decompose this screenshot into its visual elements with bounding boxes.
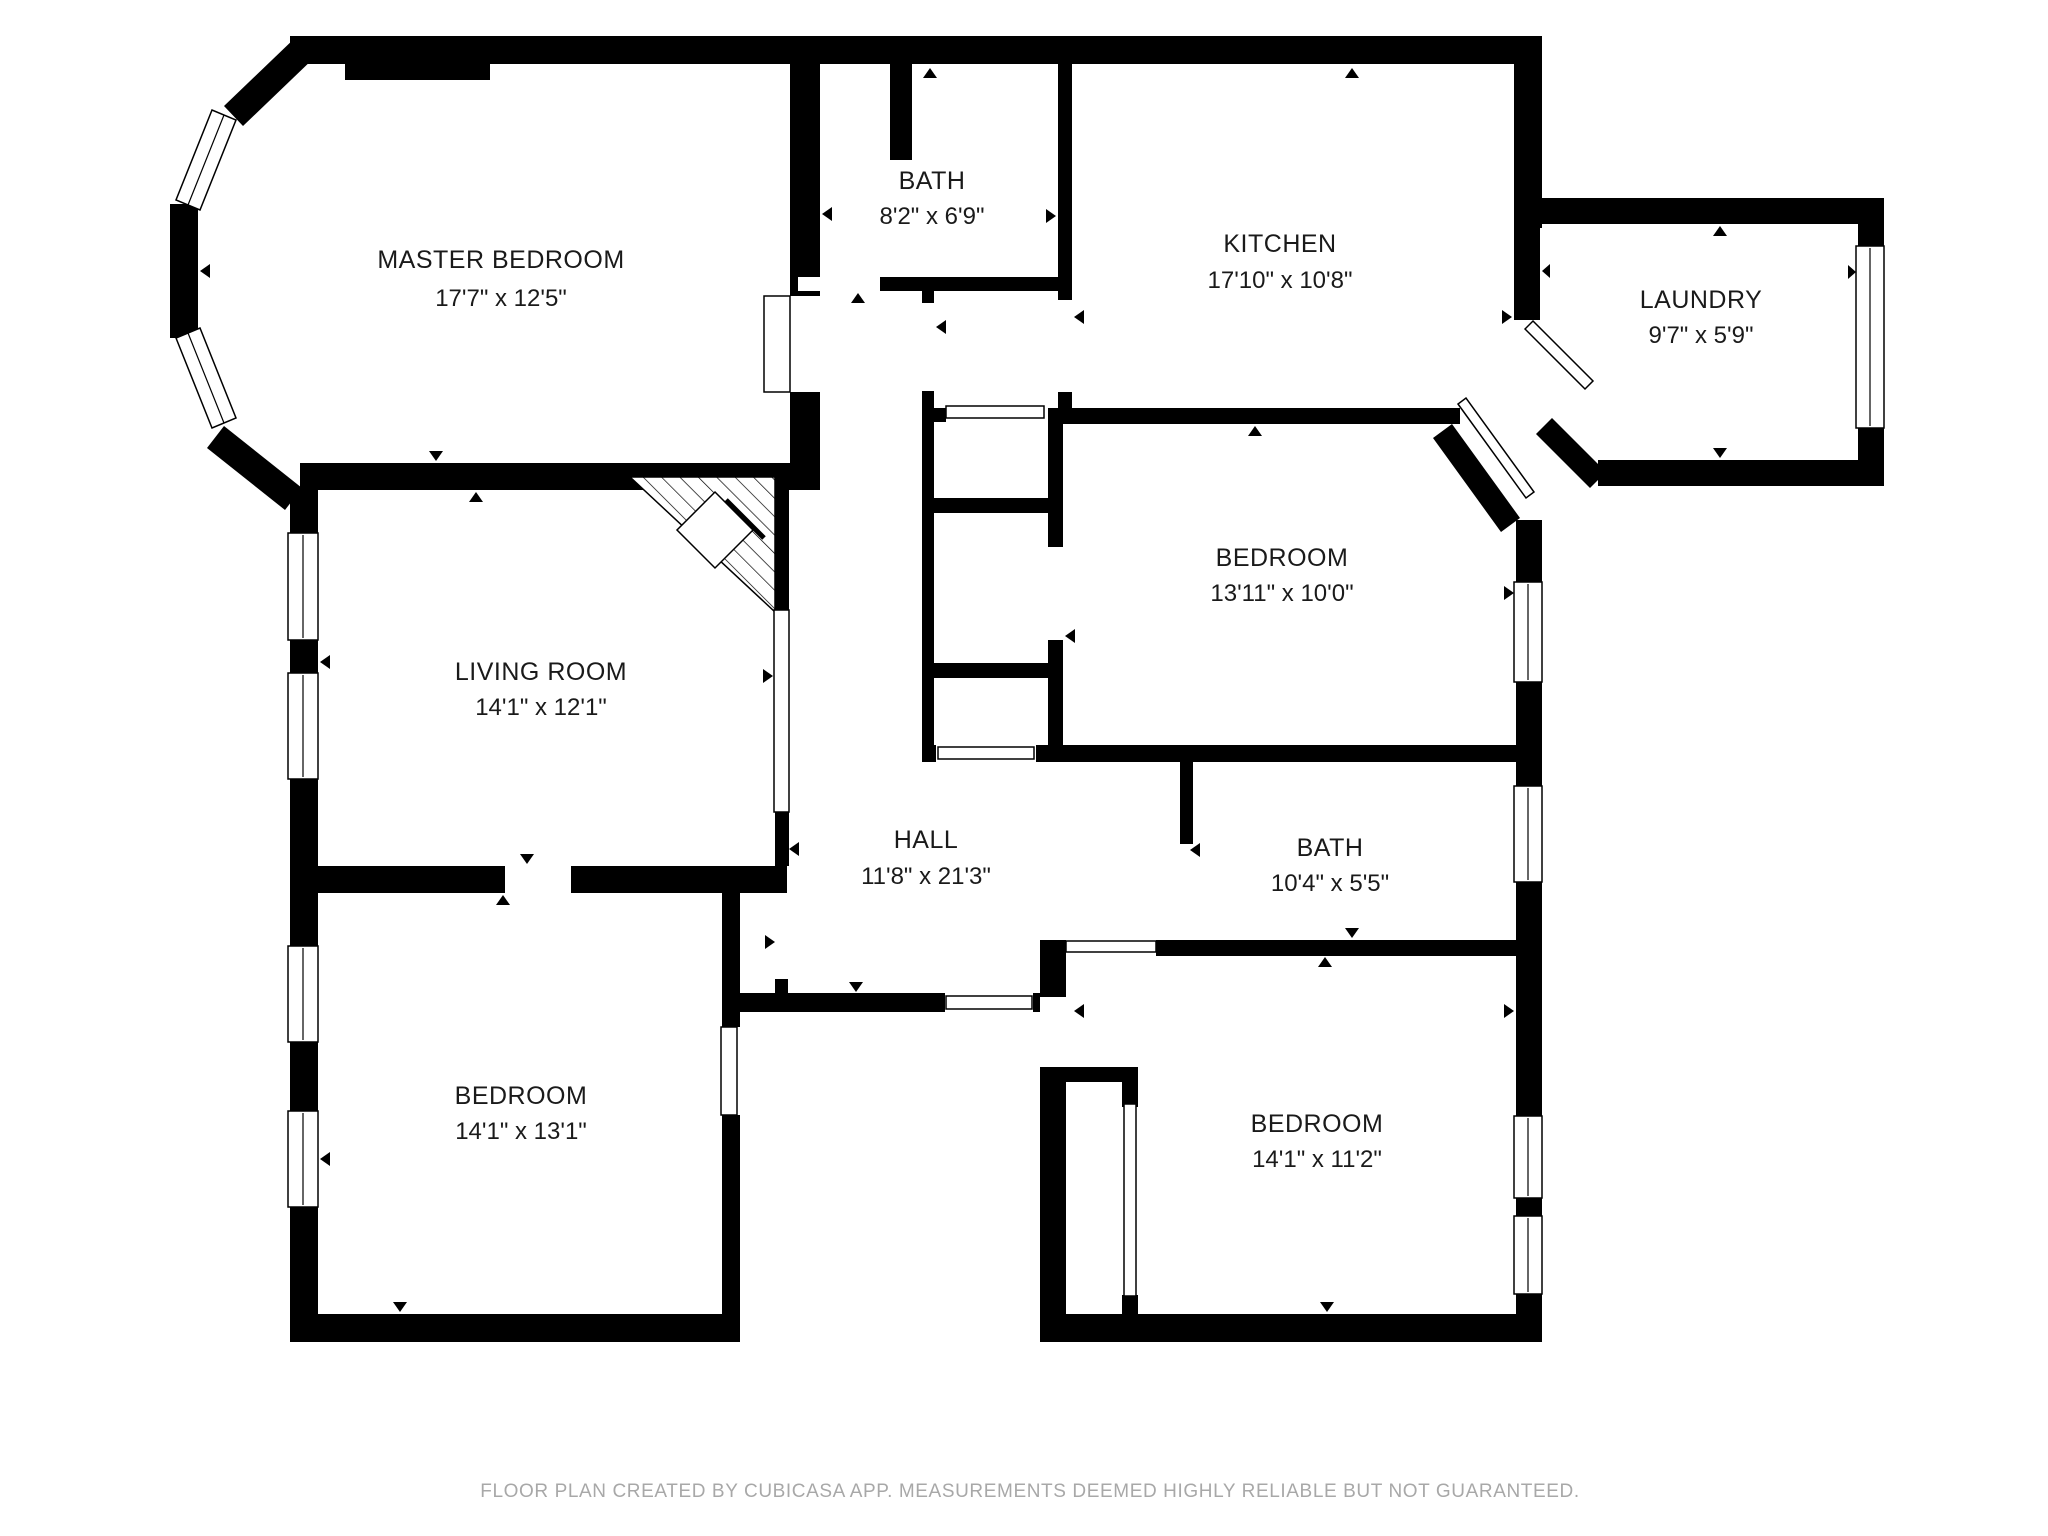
arrow-right-icon [763, 669, 773, 683]
walls [170, 36, 1884, 1342]
room-dimensions: 14'1" x 12'1" [475, 694, 607, 721]
room-name: KITCHEN [1223, 230, 1336, 258]
room-dimensions: 10'4" x 5'5" [1271, 870, 1389, 897]
room-label-master-bedroom: MASTER BEDROOM 17'7" x 12'5" [377, 246, 624, 312]
arrow-down-icon [429, 451, 443, 461]
room-dimensions: 14'1" x 13'1" [455, 1118, 587, 1145]
arrow-left-icon [1074, 310, 1084, 324]
room-label-bedroom-bottom-left: BEDROOM 14'1" x 13'1" [455, 1082, 588, 1145]
arrow-left-icon [1065, 629, 1075, 643]
arrow-left-icon [320, 1152, 330, 1166]
arrow-left-icon [1190, 843, 1200, 857]
room-label-bedroom-right: BEDROOM 13'11" x 10'0" [1210, 544, 1353, 607]
room-label-hall: HALL 11'8" x 21'3" [861, 826, 991, 890]
arrow-up-icon [1345, 68, 1359, 78]
arrow-right-icon [1046, 209, 1056, 223]
room-dimensions: 17'7" x 12'5" [435, 285, 567, 312]
arrow-down-icon [1320, 1302, 1334, 1312]
arrow-down-icon [849, 982, 863, 992]
floor-plan: MASTER BEDROOM 17'7" x 12'5" BATH 8'2" x… [0, 0, 2048, 1536]
arrow-right-icon [1848, 265, 1856, 279]
arrow-up-icon [496, 895, 510, 905]
arrow-up-icon [1248, 426, 1262, 436]
arrow-right-icon [1502, 310, 1512, 324]
room-name: BEDROOM [1251, 1110, 1384, 1138]
arrow-left-icon [200, 264, 210, 278]
arrow-left-icon [1074, 1004, 1084, 1018]
room-dimensions: 8'2" x 6'9" [880, 203, 985, 230]
arrow-down-icon [393, 1302, 407, 1312]
arrow-left-icon [1542, 264, 1550, 278]
room-label-living-room: LIVING ROOM 14'1" x 12'1" [455, 658, 627, 721]
room-dimensions: 14'1" x 11'2" [1252, 1146, 1382, 1173]
room-name: LIVING ROOM [455, 658, 627, 686]
fireplace-hatch [630, 477, 775, 612]
arrow-right-icon [1504, 1004, 1514, 1018]
room-label-bath-top: BATH 8'2" x 6'9" [880, 167, 985, 230]
room-label-kitchen: KITCHEN 17'10" x 10'8" [1208, 230, 1353, 294]
room-name: BEDROOM [1216, 544, 1349, 572]
floor-plan-page: MASTER BEDROOM 17'7" x 12'5" BATH 8'2" x… [0, 0, 2048, 1536]
room-name: BATH [1297, 834, 1364, 862]
room-dimensions: 13'11" x 10'0" [1210, 580, 1353, 607]
room-name: HALL [894, 826, 959, 854]
arrow-right-icon [765, 935, 775, 949]
arrow-down-icon [1345, 928, 1359, 938]
arrow-down-icon [1713, 448, 1727, 458]
arrow-up-icon [469, 492, 483, 502]
arrow-up-icon [1318, 957, 1332, 967]
arrow-left-icon [822, 207, 832, 221]
room-name: MASTER BEDROOM [377, 246, 624, 274]
arrow-up-icon [1713, 226, 1727, 236]
room-label-bedroom-bottom-right: BEDROOM 14'1" x 11'2" [1251, 1110, 1384, 1173]
arrow-left-icon [936, 320, 946, 334]
footer-disclaimer: FLOOR PLAN CREATED BY CUBICASA APP. MEAS… [480, 1481, 1580, 1502]
arrow-left-icon [320, 655, 330, 669]
room-label-bath-middle: BATH 10'4" x 5'5" [1271, 834, 1389, 897]
arrow-down-icon [520, 854, 534, 864]
arrow-left-icon [789, 842, 799, 856]
room-dimensions: 9'7" x 5'9" [1649, 322, 1754, 349]
room-name: BATH [899, 167, 966, 195]
room-dimensions: 11'8" x 21'3" [861, 863, 991, 890]
room-dimensions: 17'10" x 10'8" [1208, 267, 1353, 294]
room-name: LAUNDRY [1640, 286, 1763, 314]
room-label-laundry: LAUNDRY 9'7" x 5'9" [1640, 286, 1763, 349]
arrow-right-icon [1504, 586, 1514, 600]
arrow-up-icon [923, 68, 937, 78]
arrow-up-icon [851, 293, 865, 303]
room-name: BEDROOM [455, 1082, 588, 1110]
